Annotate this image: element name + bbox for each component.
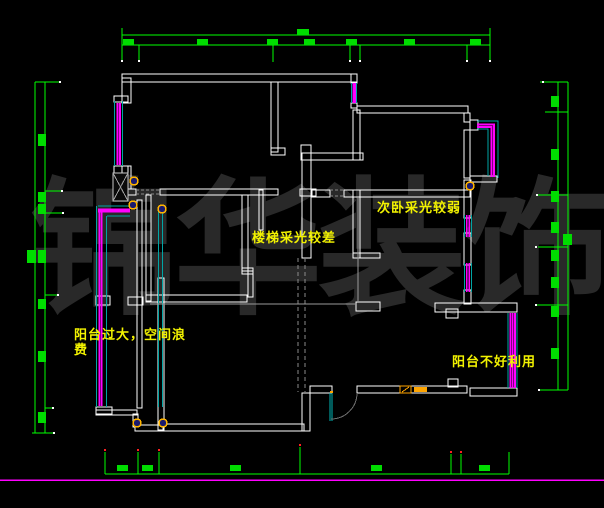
walls [96, 74, 517, 431]
dimension-dots-left [52, 81, 64, 434]
entry-fixtures [400, 386, 427, 393]
dimension-text-left [27, 134, 46, 423]
cad-canvas: 锦华装饰 [0, 0, 604, 508]
floorplan-drawing [0, 0, 604, 508]
dimension-dots-top [121, 60, 491, 62]
dimension-text-right [551, 96, 572, 359]
entry-door [330, 391, 357, 421]
annotation-staircase: 楼梯采光较差 [252, 231, 336, 246]
dimension-text-bottom [117, 465, 490, 471]
annotation-secondary-bedroom: 次卧采光较弱 [377, 201, 461, 216]
annotation-left-balcony: 阳台过大，空间浪费 [74, 328, 194, 358]
dimension-chain-bottom [105, 447, 509, 474]
dimension-dots-right [535, 81, 544, 391]
dimension-chain-left [32, 82, 63, 433]
column-hatched [113, 173, 128, 201]
annotation-right-balcony: 阳台不好利用 [452, 355, 536, 370]
hidden-beam-lines [136, 190, 358, 392]
dimension-text-top [123, 29, 481, 45]
axis-markers-bottom [104, 444, 462, 453]
